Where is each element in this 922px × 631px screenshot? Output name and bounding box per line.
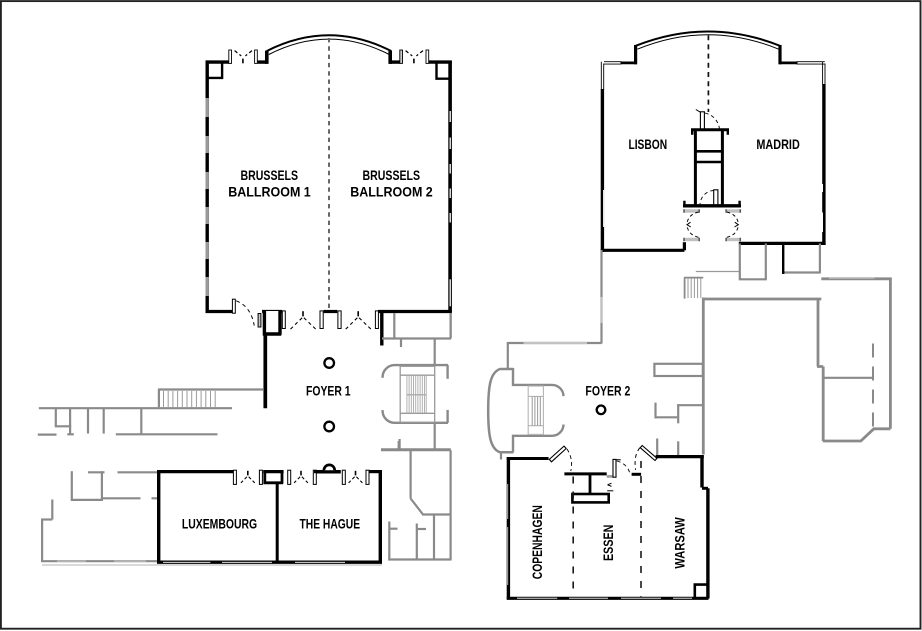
svg-text:COPENHAGEN: COPENHAGEN [530, 505, 545, 579]
svg-text:BRUSSELS: BRUSSELS [363, 168, 421, 183]
svg-text:LUXEMBOURG: LUXEMBOURG [182, 516, 257, 531]
svg-text:THE HAGUE: THE HAGUE [300, 516, 361, 531]
svg-text:FOYER 1: FOYER 1 [306, 383, 351, 398]
svg-text:MADRID: MADRID [756, 137, 799, 152]
svg-text:BALLROOM 1: BALLROOM 1 [228, 185, 311, 200]
svg-text:BALLROOM 2: BALLROOM 2 [350, 185, 433, 200]
svg-text:LISBON: LISBON [628, 137, 667, 152]
svg-text:WARSAW: WARSAW [672, 516, 687, 568]
svg-text:FOYER 2: FOYER 2 [585, 383, 630, 398]
svg-text:ESSEN: ESSEN [601, 525, 616, 561]
svg-text:BRUSSELS: BRUSSELS [241, 168, 299, 183]
